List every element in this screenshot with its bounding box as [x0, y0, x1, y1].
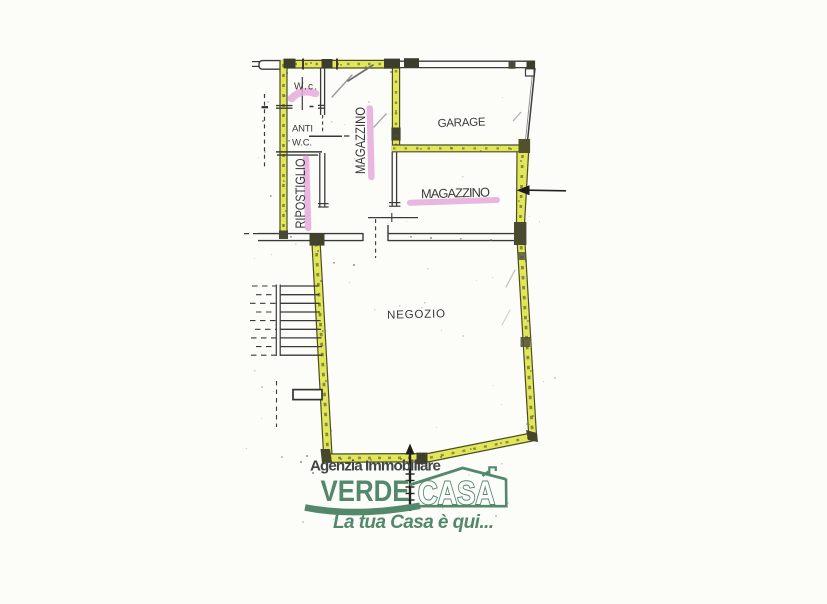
svg-text:MAGAZZINO: MAGAZZINO — [421, 185, 490, 202]
svg-text:VERDE: VERDE — [321, 475, 410, 508]
svg-text:NEGOZIO: NEGOZIO — [387, 307, 445, 322]
svg-text:W.c.: W.c. — [294, 82, 317, 93]
svg-text:RIPOSTIGLIO: RIPOSTIGLIO — [292, 158, 308, 228]
svg-text:CASA: CASA — [418, 475, 495, 511]
svg-text:GARAGE: GARAGE — [437, 115, 486, 130]
svg-text:MAGAZZINO: MAGAZZINO — [352, 107, 368, 174]
svg-text:La tua Casa è qui...: La tua Casa è qui... — [333, 512, 494, 533]
svg-text:Agenzia Immobiliare: Agenzia Immobiliare — [310, 458, 441, 475]
svg-text:ANTI: ANTI — [292, 124, 313, 135]
svg-text:W.C.: W.C. — [292, 138, 312, 149]
